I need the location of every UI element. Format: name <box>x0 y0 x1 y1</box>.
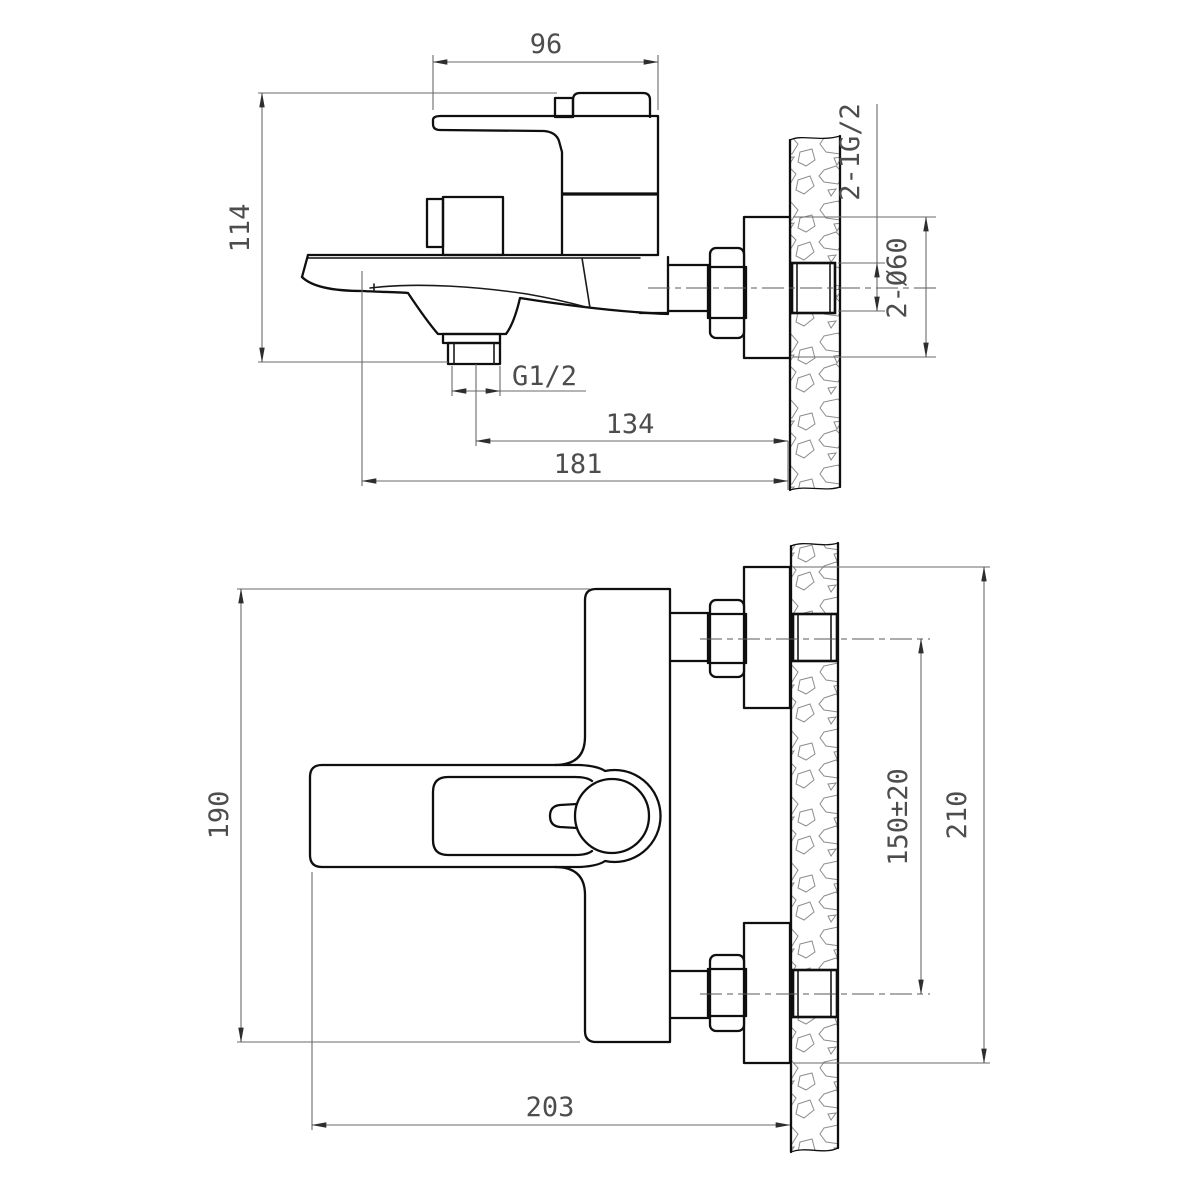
handle-pointer <box>550 804 577 828</box>
dimension-96: 96 <box>433 29 658 110</box>
handle-front <box>310 765 661 867</box>
handle-recess <box>433 777 592 855</box>
neck-fillet-top <box>555 600 585 765</box>
spout-side <box>302 255 668 364</box>
dim-114-label: 114 <box>225 204 256 253</box>
escutcheon-lower <box>744 923 790 1063</box>
dim-190-label: 190 <box>204 791 235 840</box>
body-front <box>555 589 670 1042</box>
dim-181-label: 181 <box>554 449 603 480</box>
neck-fillet-bottom <box>555 867 585 1031</box>
inlet-connector-lower <box>670 955 746 1031</box>
dim-2-1g2-label: 2-1G/2 <box>835 103 866 201</box>
dim-g12-label: G1/2 <box>512 361 577 392</box>
diverter-knob-side <box>427 197 503 255</box>
dim-210-label: 210 <box>942 791 973 840</box>
handle-ring-inner <box>575 779 649 853</box>
dimension-114: 114 <box>225 93 557 362</box>
handle-cap-block <box>555 98 573 117</box>
dim-203-label: 203 <box>526 1092 575 1123</box>
dimension-g12: G1/2 <box>452 361 586 396</box>
lever-and-body-outline <box>433 116 658 255</box>
front-view: 190 203 150±20 210 <box>204 543 990 1152</box>
body-slab-outline <box>585 589 670 1042</box>
handle-lever-side <box>433 93 658 255</box>
side-view: 96 114 G1/2 134 181 <box>225 29 936 490</box>
technical-drawing-page: 96 114 G1/2 134 181 <box>0 0 1200 1200</box>
dim-134-label: 134 <box>606 409 655 440</box>
dimension-190: 190 <box>204 589 590 1042</box>
dimension-150: 150±20 <box>883 639 921 994</box>
hex-nut-lower <box>710 955 744 1031</box>
inlet-connector-side <box>668 248 746 338</box>
spout-rear-slant <box>582 258 590 308</box>
dim-96-label: 96 <box>530 29 563 60</box>
dim-2d60-label: 2-Ø60 <box>882 237 913 318</box>
dim-150-label: 150±20 <box>883 768 914 866</box>
escutcheon-upper <box>744 567 790 708</box>
faucet-drawing-svg: 96 114 G1/2 134 181 <box>0 0 1200 1200</box>
outlet-adapter <box>448 343 500 364</box>
spout-tip <box>302 255 308 277</box>
callout-wall-thread: 2-1G/2 <box>835 103 885 311</box>
handle-end-cap <box>573 93 650 117</box>
outlet-flange <box>443 334 500 343</box>
hex-nut-side <box>710 248 744 338</box>
spout-underside <box>302 277 668 334</box>
wall-fitting-upper <box>793 614 837 661</box>
